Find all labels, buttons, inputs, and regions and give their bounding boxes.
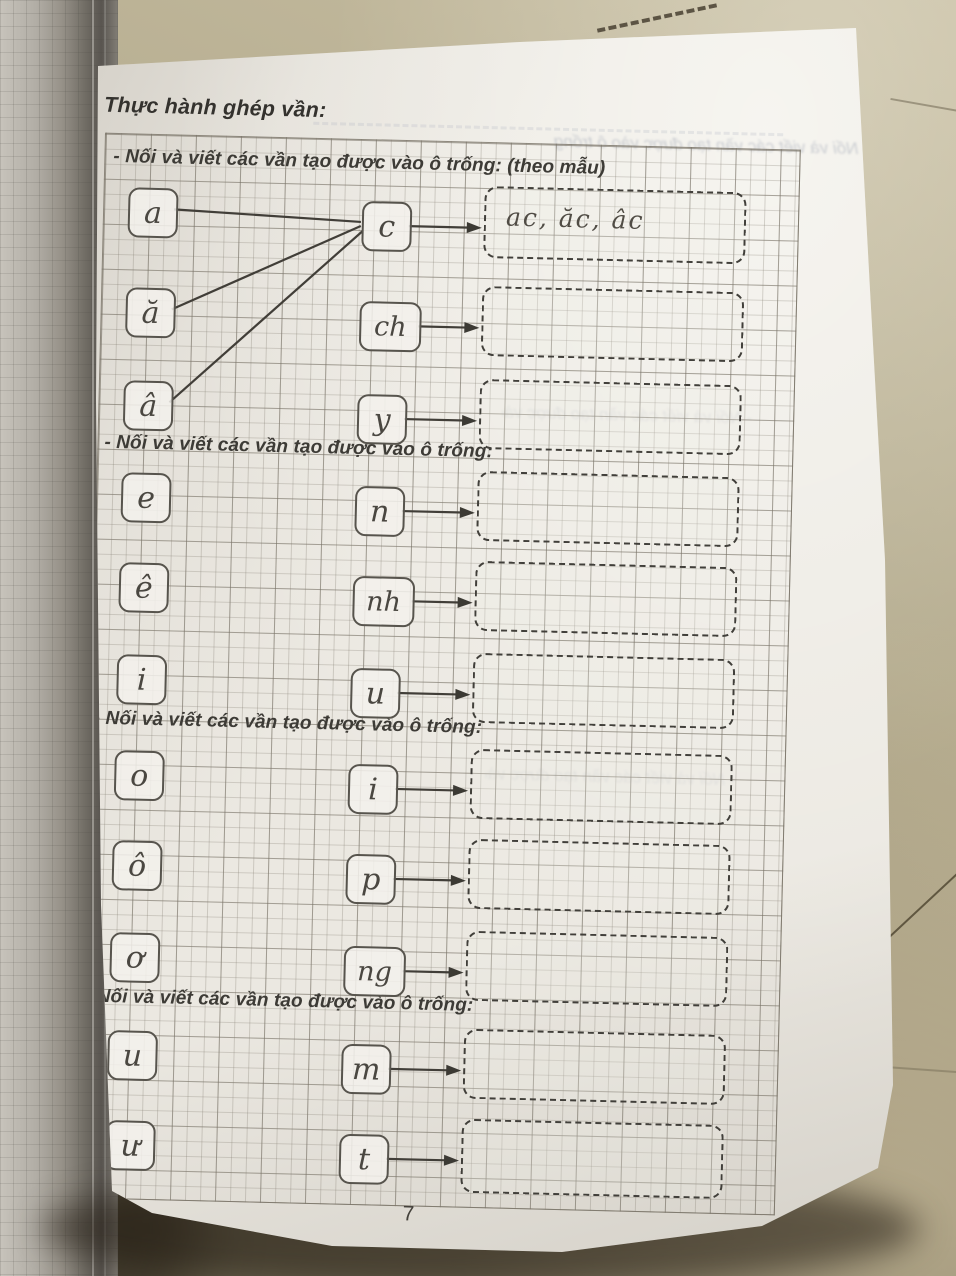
letter-tile-abreve: ă (125, 287, 176, 338)
section-1-label: - Nối và viết các vần tạo được vào ô trố… (113, 146, 605, 180)
letter-tile-o: o (114, 750, 165, 801)
page-number: 7 (402, 1202, 414, 1226)
answer-box-4 (476, 471, 740, 547)
letter-label: t (358, 1142, 371, 1177)
answer-box-8 (467, 839, 731, 915)
letter-label: n (370, 494, 390, 529)
letter-label: u (122, 1038, 142, 1073)
worksheet-grid-area: - Nối và viết các vần tạo được vào ô trố… (79, 133, 801, 1216)
answer-box-1: ac, ăc, âc (483, 186, 747, 264)
section-4-label: - Nối và viết các vần tạo được vào ô trố… (85, 985, 474, 1016)
letter-label: e (137, 480, 156, 515)
letter-tile-y: y (356, 394, 407, 445)
connection-line (172, 221, 361, 314)
answer-box-11 (460, 1119, 724, 1199)
letter-label: ă (141, 295, 160, 330)
connection-line (169, 226, 362, 407)
letter-label: a (144, 195, 163, 230)
letter-tile-uhorn: ư (105, 1120, 156, 1171)
example-answer: ac, ăc, âc (506, 203, 645, 235)
letter-tile-p: p (345, 854, 396, 905)
letter-tile-m: m (341, 1044, 392, 1095)
letter-label: m (352, 1051, 381, 1087)
answer-box-7 (469, 749, 733, 825)
letter-label: p (361, 862, 381, 897)
letter-tile-t: t (338, 1134, 389, 1185)
letter-label: o (130, 758, 149, 793)
letter-label: c (378, 209, 396, 244)
letter-label: ng (357, 956, 392, 988)
letter-tile-n: n (354, 486, 405, 537)
letter-label: ô (128, 848, 147, 883)
letter-label: i (136, 662, 146, 697)
connection-line (174, 209, 361, 222)
answer-box-9 (465, 931, 729, 1007)
letter-tile-ocirc: ô (112, 840, 163, 891)
letter-tile-u: u (350, 668, 401, 719)
answer-box-10 (463, 1029, 727, 1105)
letter-tile-acirc: â (123, 380, 174, 431)
letter-tile-ch: ch (359, 301, 422, 352)
worksheet-page: 4. Thực hành ghép vần: - Nối và viết các… (0, 0, 956, 1276)
letter-label: ơ (125, 940, 144, 975)
letter-tile-ng: ng (343, 946, 406, 997)
printed-content: 4. Thực hành ghép vần: - Nối và viết các… (50, 92, 808, 1259)
letter-tile-ecirc: ê (118, 562, 169, 613)
workbook-photo: 4. Thực hành ghép vần: - Nối và viết các… (0, 0, 956, 1276)
exercise-title: 4. Thực hành ghép vần: (79, 92, 326, 123)
letter-label: â (139, 388, 158, 423)
letter-tile-nh: nh (352, 576, 415, 627)
section-3-label: - Nối và viết các vần tạo được vào ô trố… (93, 708, 482, 739)
letter-label: ư (120, 1128, 140, 1163)
letter-tile-c: c (361, 201, 412, 252)
letter-tile-i2: i (347, 764, 398, 815)
page-edge (92, 0, 94, 1276)
letter-label: ch (374, 311, 407, 343)
answer-box-3 (478, 379, 742, 455)
letter-label: y (373, 402, 391, 437)
letter-tile-a: a (127, 187, 178, 238)
letter-label: u (365, 676, 385, 711)
letter-label: nh (366, 586, 402, 618)
letter-tile-e: e (121, 472, 172, 523)
letter-tile-i: i (116, 654, 167, 705)
answer-box-5 (474, 561, 738, 637)
answer-box-6 (472, 653, 736, 729)
section-2-label: - Nối và viết các vần tạo được vào ô trố… (104, 432, 493, 463)
letter-label: i (368, 772, 378, 807)
letter-tile-u2: u (107, 1030, 158, 1081)
letter-label: ê (135, 570, 154, 605)
answer-box-2 (481, 286, 745, 362)
letter-tile-ohorn: ơ (109, 932, 160, 983)
